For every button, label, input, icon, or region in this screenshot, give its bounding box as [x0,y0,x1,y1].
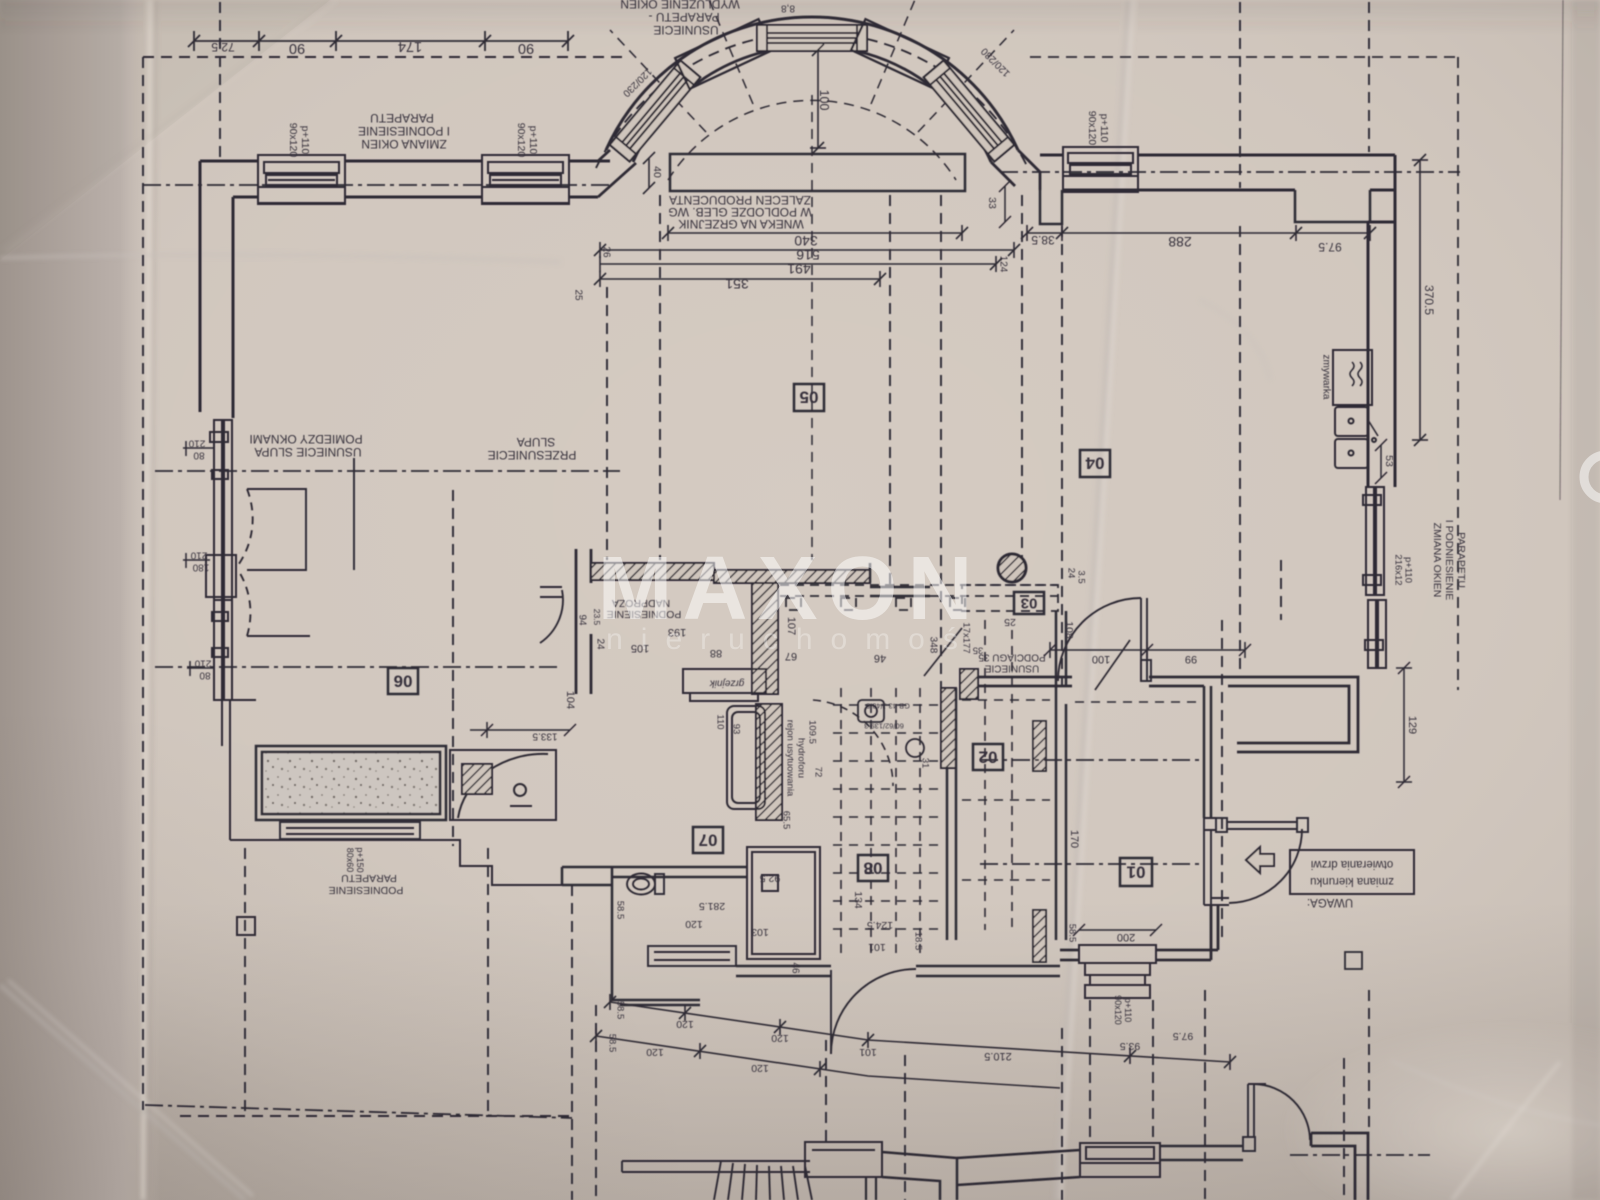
svg-text:104: 104 [564,691,576,709]
svg-text:USUNIECIE SLUPA: USUNIECIE SLUPA [254,445,361,459]
svg-text:I PODNIESIENIE: I PODNIESIENIE [358,124,450,138]
svg-text:nieruchomoś: nieruchomoś [606,623,976,656]
svg-text:3.5: 3.5 [1076,570,1087,583]
svg-text:133.5: 133.5 [532,731,557,742]
svg-text:351: 351 [725,276,749,292]
svg-text:90x120: 90x120 [515,123,527,158]
svg-text:120: 120 [646,1046,664,1058]
svg-text:210: 210 [188,438,205,449]
svg-text:80: 80 [193,450,205,461]
svg-text:129: 129 [1406,716,1418,734]
svg-text:60/62/139.3: 60/62/139.3 [864,722,904,731]
svg-text:120: 120 [751,1062,769,1074]
svg-text:I PODNIESIENIE: I PODNIESIENIE [1443,520,1455,601]
svg-text:PODNIESIENIE: PODNIESIENIE [329,884,404,896]
svg-text:PARAPETU: PARAPETU [1455,532,1467,588]
svg-text:120: 120 [771,1032,789,1044]
svg-text:90x120: 90x120 [1086,111,1098,146]
svg-text:92.5: 92.5 [760,872,781,884]
svg-text:109.5: 109.5 [807,720,818,744]
svg-text:101: 101 [868,941,886,953]
svg-text:108: 108 [1063,621,1075,639]
svg-text:90x120: 90x120 [287,123,299,158]
svg-text:18.5: 18.5 [913,932,924,951]
svg-text:24: 24 [595,638,606,650]
svg-text:25: 25 [1004,616,1016,628]
svg-text:124: 124 [998,256,1009,273]
svg-text:p+110: p+110 [1123,998,1133,1023]
svg-text:ZMIANA OKIEN: ZMIANA OKIEN [1431,523,1443,598]
svg-text:103: 103 [751,926,769,938]
svg-text:80: 80 [199,670,211,681]
svg-text:491: 491 [787,261,811,277]
svg-text:340: 340 [794,233,818,249]
svg-text:POMIEDZY OKNAMI: POMIEDZY OKNAMI [249,432,362,446]
svg-text:26: 26 [601,246,612,258]
svg-text:120: 120 [685,918,703,930]
svg-text:100: 100 [817,90,831,111]
svg-text:01: 01 [1127,863,1146,882]
svg-text:134: 134 [852,891,864,909]
svg-text:170: 170 [1068,830,1080,848]
svg-text:58.5: 58.5 [607,1034,618,1053]
svg-text:124.5: 124.5 [867,919,893,931]
svg-text:58.5: 58.5 [1067,924,1078,943]
svg-text:93: 93 [731,724,742,735]
svg-text:31: 31 [920,758,931,769]
svg-text:38.5: 38.5 [1031,233,1055,247]
svg-text:210.5: 210.5 [984,1050,1012,1062]
svg-text:281.5: 281.5 [699,900,725,912]
svg-text:210: 210 [190,550,207,561]
svg-text:05: 05 [800,388,819,407]
svg-text:94: 94 [577,614,588,626]
svg-text:p+110: p+110 [1403,557,1414,583]
svg-text:03: 03 [1021,595,1038,612]
svg-text:200: 200 [1117,931,1135,943]
svg-text:174: 174 [398,38,422,54]
svg-text:02: 02 [979,748,998,767]
svg-text:ZMIANA OKIEN: ZMIANA OKIEN [361,137,446,151]
svg-text:p+150: p+150 [355,847,365,872]
svg-text:PARAPETU -: PARAPETU - [648,10,719,24]
svg-text:101: 101 [859,1046,877,1058]
svg-text:USUNIECIE: USUNIECIE [653,23,718,37]
svg-text:ZALECEN PRODUCENTA: ZALECEN PRODUCENTA [669,193,811,207]
svg-text:33: 33 [986,197,998,209]
svg-text:PODCIAGU 35: PODCIAGU 35 [978,652,1046,663]
svg-text:58.5: 58.5 [615,901,626,920]
svg-text:58.5: 58.5 [615,1001,626,1020]
svg-text:PARAPETU: PARAPETU [341,872,397,884]
svg-text:80x60: 80x60 [345,848,355,873]
svg-text:PRZESUNIECIE: PRZESUNIECIE [488,448,577,462]
svg-text:zmiana kierunku: zmiana kierunku [1310,875,1394,887]
svg-text:72.5: 72.5 [211,40,235,54]
svg-text:370.5: 370.5 [1422,285,1436,315]
svg-text:otwierania drzwi: otwierania drzwi [1311,858,1393,870]
svg-text:8,8: 8,8 [781,3,795,14]
svg-text:93.5: 93.5 [1120,1040,1141,1052]
svg-text:90: 90 [289,40,305,56]
svg-text:25: 25 [573,289,584,301]
svg-text:hydroforu: hydroforu [796,738,807,778]
svg-text:04: 04 [1085,454,1104,473]
svg-text:99: 99 [1185,653,1197,665]
svg-text:180: 180 [192,562,209,573]
svg-text:rejon usytuowania: rejon usytuowania [785,720,796,797]
svg-text:120: 120 [676,1018,694,1030]
svg-text:06: 06 [394,672,413,691]
svg-text:216x12: 216x12 [1393,554,1404,585]
svg-text:p+110: p+110 [299,126,311,155]
svg-text:UWAGA:: UWAGA: [1307,896,1353,908]
svg-text:90: 90 [518,40,534,56]
svg-text:PARAPETU: PARAPETU [370,111,434,125]
svg-text:65.5: 65.5 [781,811,792,830]
svg-text:WYDLUZENIE OKIEN: WYDLUZENIE OKIEN [620,0,739,11]
svg-text:07: 07 [699,831,718,850]
svg-text:90x120: 90x120 [1113,995,1123,1025]
svg-text:zmywarka: zmywarka [1321,354,1332,399]
svg-text:288: 288 [1168,234,1192,250]
svg-text:53: 53 [1383,455,1395,467]
svg-text:110: 110 [715,714,726,729]
svg-text:p+110: p+110 [1098,114,1110,143]
svg-text:p+110: p+110 [527,126,539,155]
svg-text:46: 46 [790,962,801,974]
svg-text:SLUPA: SLUPA [517,435,555,449]
svg-text:210: 210 [194,658,211,669]
svg-text:grzejnik: grzejnik [709,678,744,689]
svg-text:72: 72 [813,767,824,778]
svg-text:97.5: 97.5 [1318,240,1342,254]
svg-text:40: 40 [651,166,663,178]
svg-text:08: 08 [864,859,883,878]
svg-text:100: 100 [1092,653,1110,665]
svg-text:97.5: 97.5 [1173,1030,1194,1042]
svg-text:516: 516 [796,247,820,263]
svg-text:24: 24 [1066,568,1077,579]
svg-text:USUNIECIE: USUNIECIE [984,663,1039,674]
svg-text:GB 43 J/48.5: GB 43 J/48.5 [866,702,910,711]
